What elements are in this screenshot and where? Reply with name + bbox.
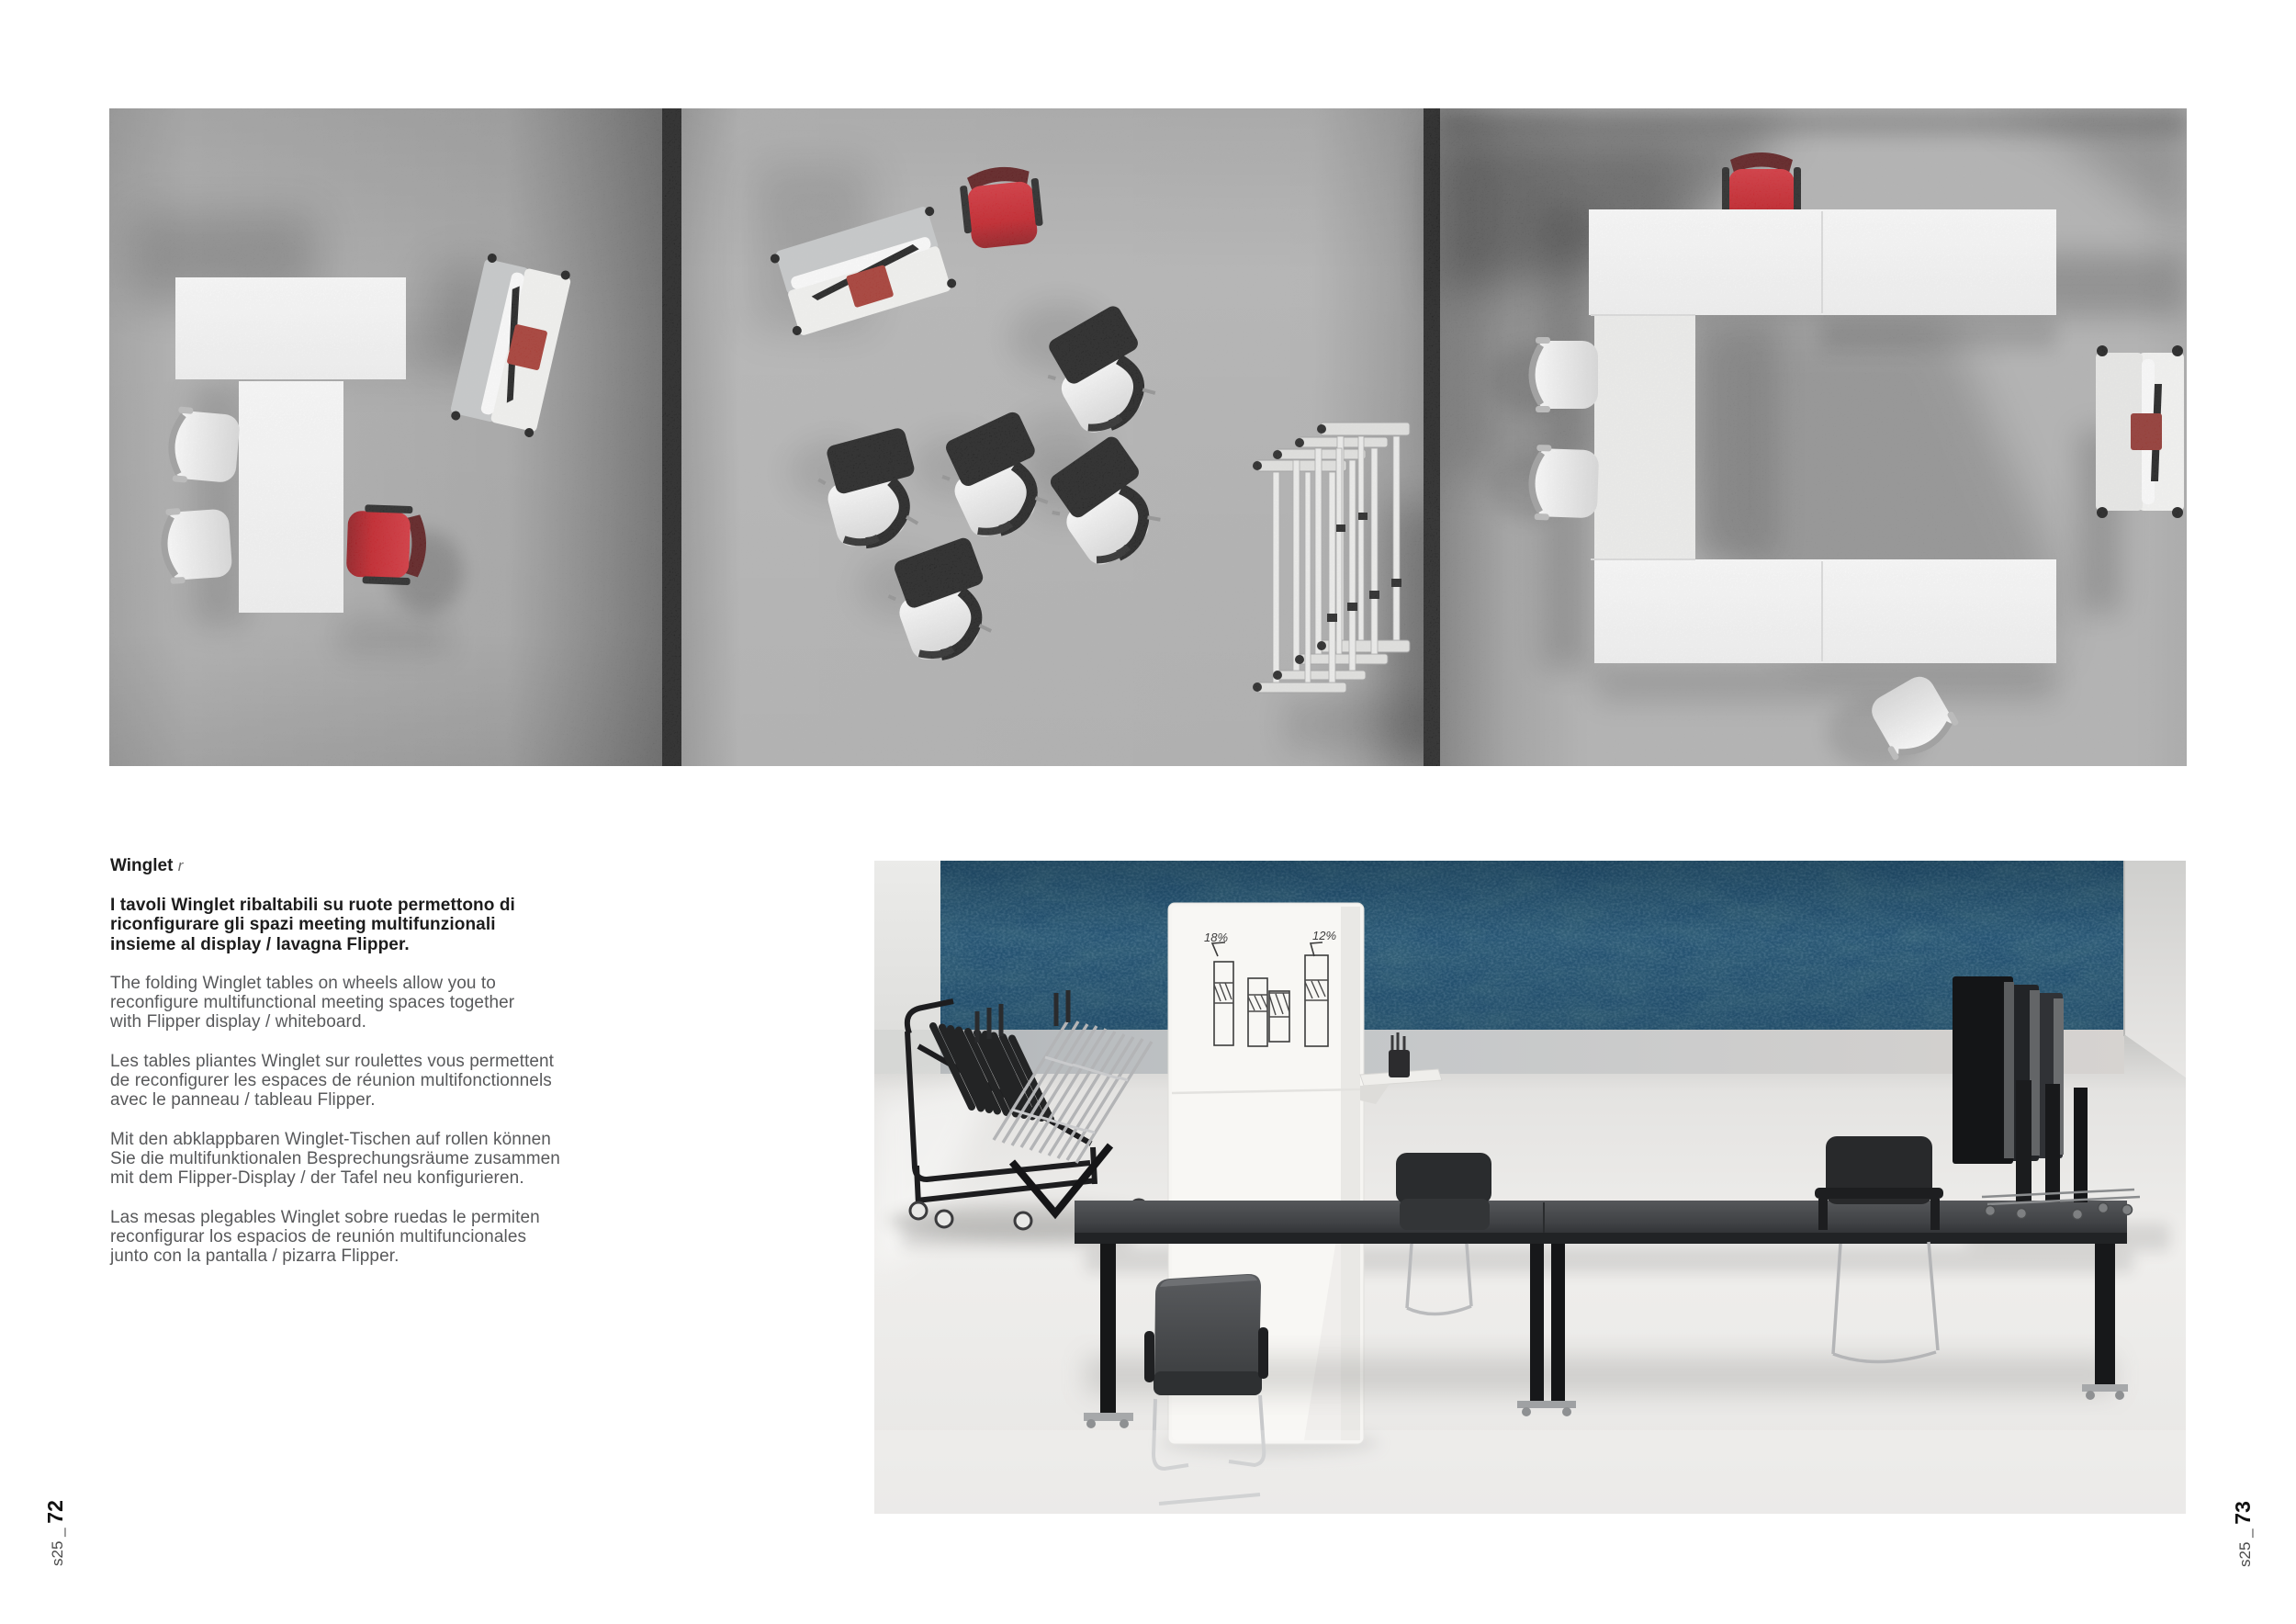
- svg-text:12%: 12%: [1312, 929, 1336, 942]
- svg-text:18%: 18%: [1204, 930, 1228, 944]
